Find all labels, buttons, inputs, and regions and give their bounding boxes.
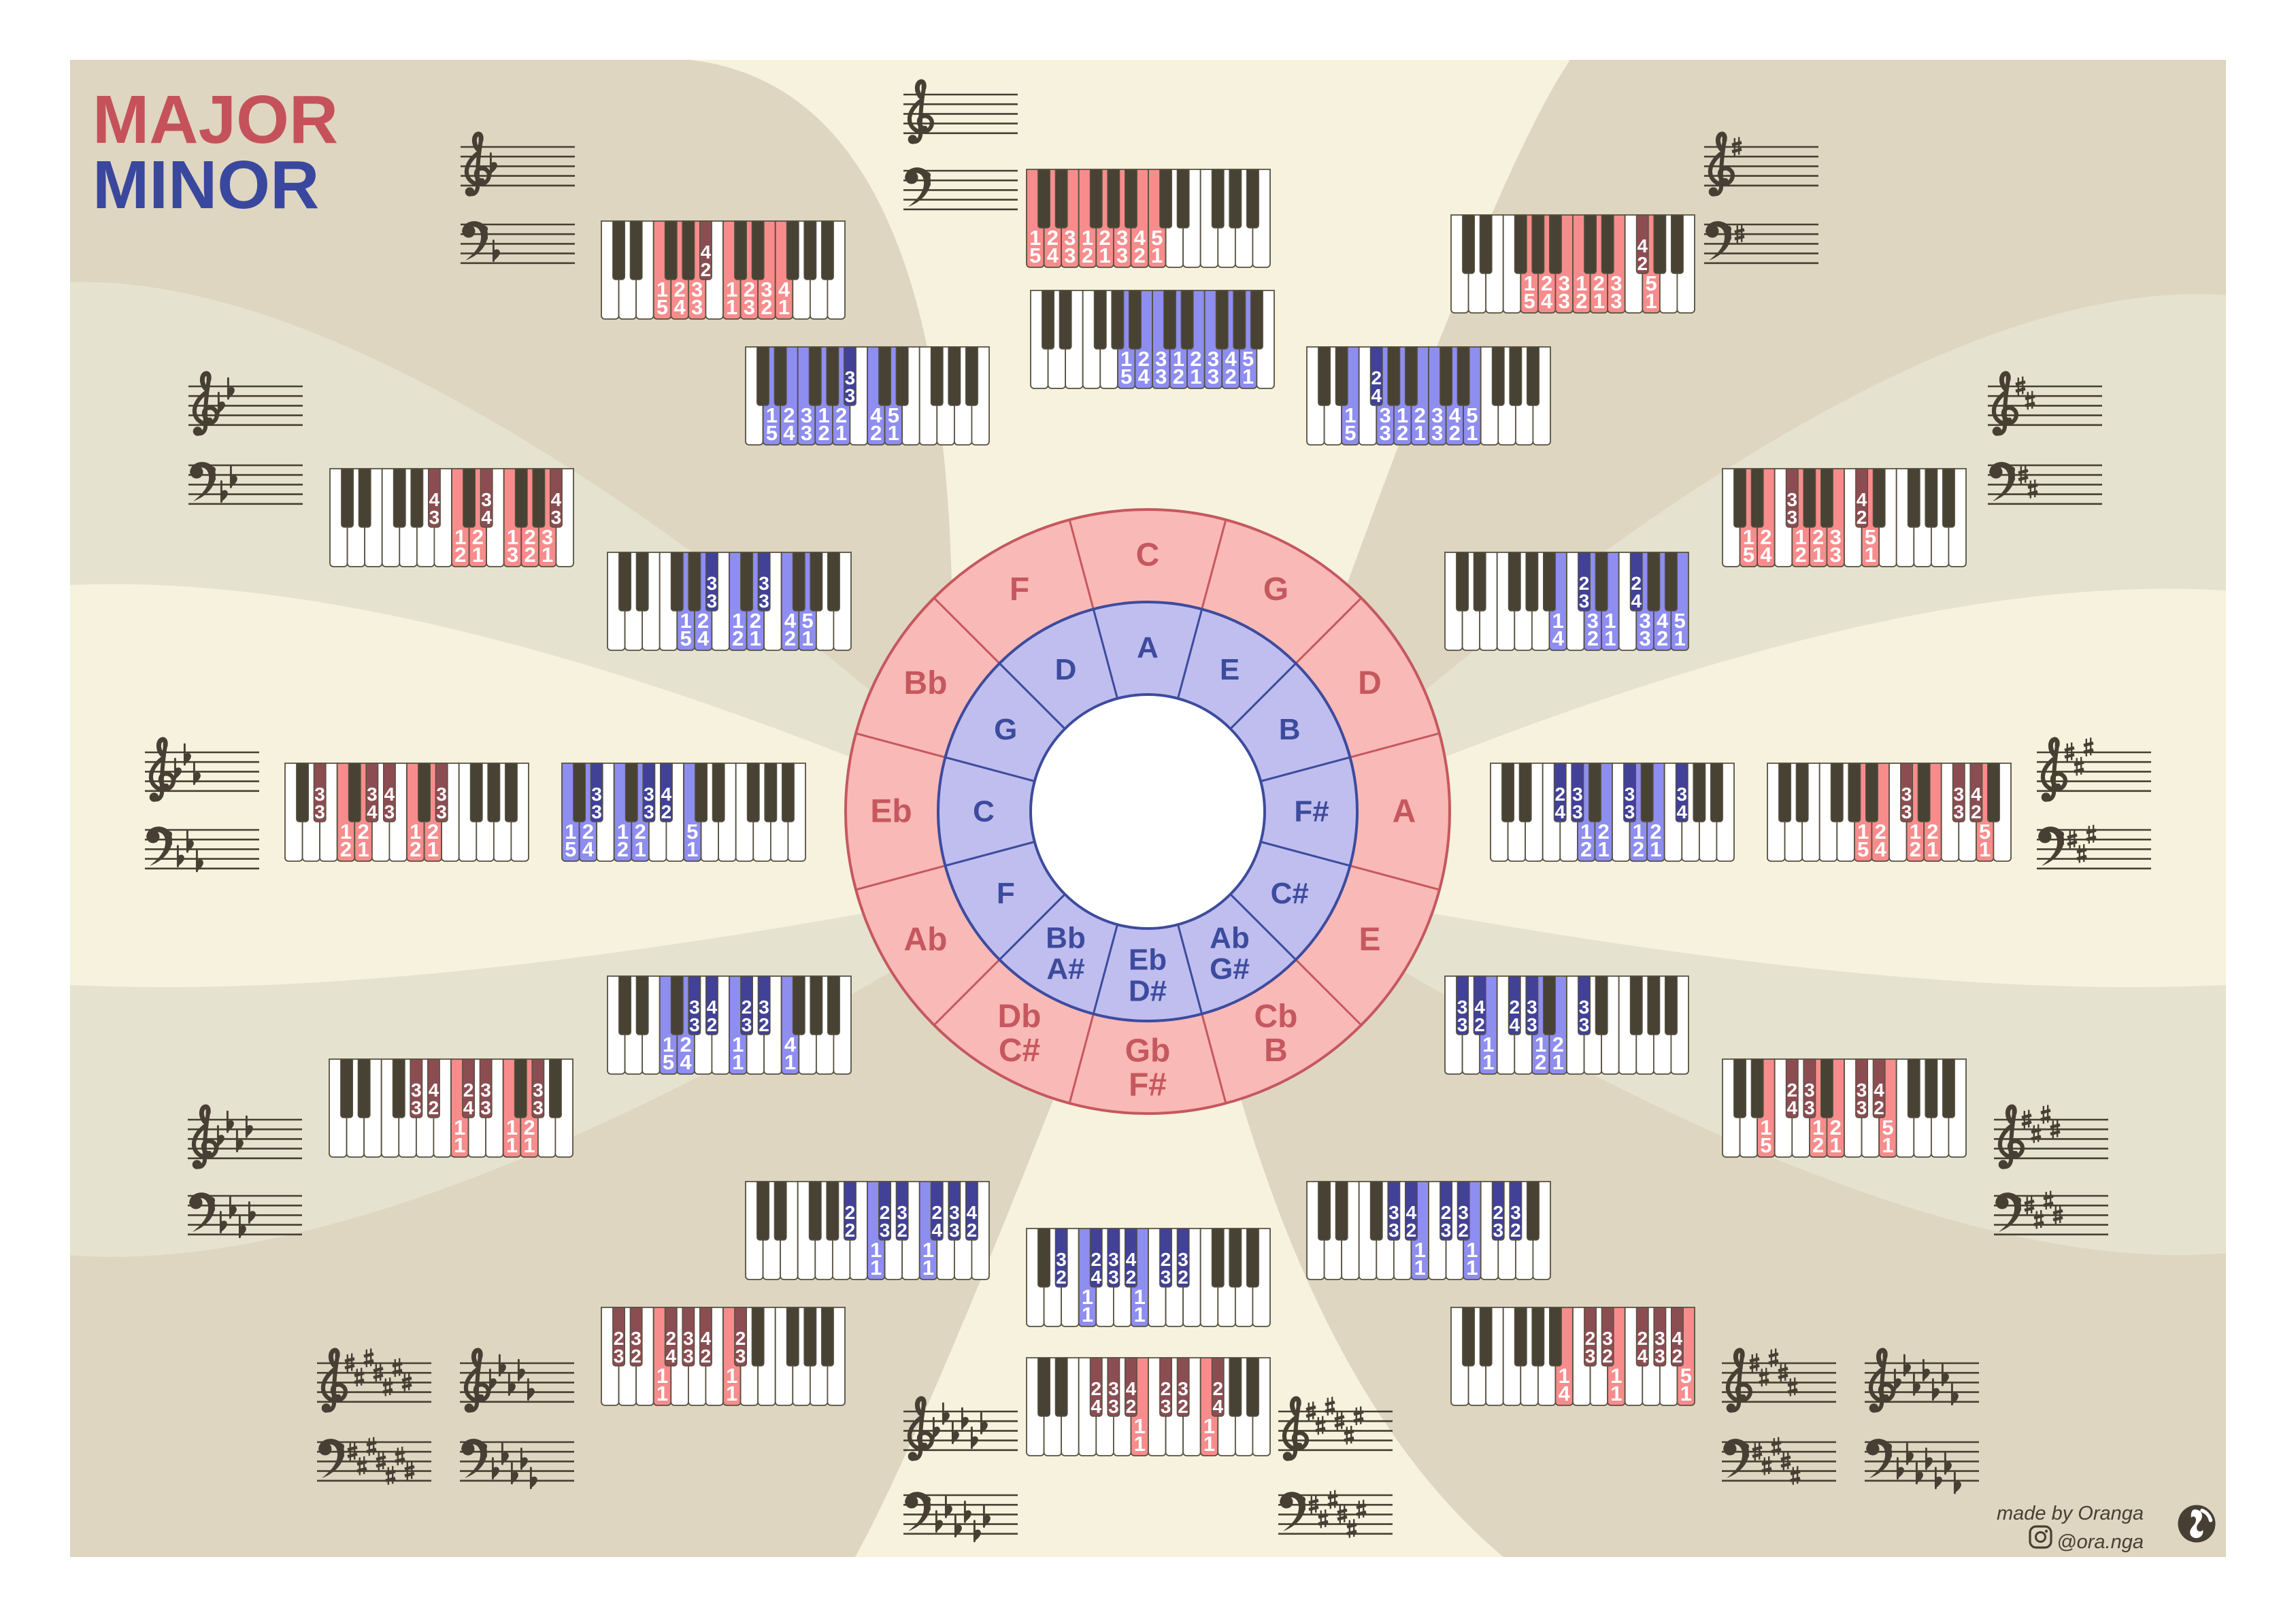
svg-text:2: 2	[1971, 801, 1982, 822]
svg-text:2: 2	[784, 626, 796, 650]
svg-text:2: 2	[967, 1220, 978, 1241]
svg-text:1: 1	[1610, 1382, 1622, 1405]
svg-text:1: 1	[1242, 365, 1254, 388]
svg-text:2: 2	[340, 837, 352, 861]
svg-text:1: 1	[870, 1256, 882, 1280]
svg-text:4: 4	[1555, 801, 1566, 822]
svg-text:2: 2	[701, 259, 712, 280]
svg-text:2: 2	[1178, 1267, 1188, 1288]
svg-text:A: A	[1393, 794, 1416, 830]
svg-text:Eb: Eb	[870, 794, 912, 830]
svg-text:3: 3	[429, 507, 440, 528]
svg-text:2: 2	[1580, 837, 1592, 861]
svg-text:3: 3	[1857, 1097, 1867, 1118]
svg-text:4: 4	[666, 1346, 677, 1367]
svg-text:4: 4	[1213, 1396, 1224, 1417]
svg-text:2: 2	[1633, 837, 1644, 861]
svg-text:1: 1	[784, 1050, 796, 1074]
svg-text:3: 3	[1388, 1220, 1399, 1241]
svg-text:B: B	[1279, 713, 1301, 746]
svg-text:3: 3	[411, 1097, 422, 1118]
svg-text:4: 4	[932, 1220, 943, 1241]
svg-text:4: 4	[1091, 1267, 1102, 1288]
svg-text:1: 1	[1812, 543, 1824, 567]
svg-text:3: 3	[801, 421, 812, 445]
svg-text:1: 1	[427, 837, 439, 861]
svg-text:1: 1	[1680, 1382, 1692, 1405]
svg-text:3: 3	[614, 1346, 625, 1367]
svg-text:2: 2	[701, 1346, 712, 1367]
svg-text:5: 5	[565, 837, 576, 861]
svg-text:2: 2	[1449, 421, 1461, 445]
svg-text:4: 4	[367, 801, 378, 822]
svg-text:2: 2	[897, 1220, 908, 1241]
svg-text:2: 2	[1637, 253, 1648, 274]
svg-text:Gb: Gb	[1125, 1033, 1171, 1069]
svg-text:3: 3	[880, 1220, 891, 1241]
svg-text:G: G	[994, 713, 1017, 746]
svg-text:1: 1	[778, 295, 790, 319]
svg-text:2: 2	[1082, 244, 1093, 267]
svg-text:2: 2	[1910, 837, 1921, 861]
svg-text:3: 3	[1116, 244, 1128, 267]
svg-text:1: 1	[726, 295, 737, 319]
svg-text:2: 2	[429, 1097, 439, 1118]
svg-text:3: 3	[1064, 244, 1076, 267]
svg-text:4: 4	[680, 1050, 692, 1074]
svg-text:1: 1	[1414, 421, 1426, 445]
svg-text:3: 3	[507, 543, 518, 567]
svg-text:1: 1	[1151, 244, 1163, 267]
svg-text:3: 3	[591, 801, 602, 822]
svg-text:3: 3	[1610, 289, 1622, 313]
svg-text:5: 5	[656, 295, 668, 319]
svg-text:3: 3	[742, 1014, 752, 1035]
svg-text:4: 4	[1677, 801, 1688, 822]
svg-text:2: 2	[1126, 1396, 1137, 1417]
svg-text:2: 2	[1576, 289, 1587, 313]
svg-text:1: 1	[1099, 244, 1110, 267]
svg-text:1: 1	[1674, 626, 1686, 650]
svg-text:1: 1	[1830, 1133, 1842, 1157]
svg-text:4: 4	[1559, 1382, 1571, 1405]
svg-text:1: 1	[472, 543, 484, 567]
svg-text:D#: D#	[1129, 974, 1167, 1007]
svg-text:4: 4	[582, 837, 595, 861]
svg-text:3: 3	[1830, 543, 1842, 567]
svg-text:1: 1	[1414, 1256, 1426, 1280]
svg-text:F: F	[997, 877, 1015, 910]
svg-text:3: 3	[1441, 1220, 1452, 1241]
svg-text:1: 1	[750, 626, 761, 650]
svg-text:3: 3	[480, 1097, 491, 1118]
svg-text:D: D	[1055, 653, 1077, 686]
svg-text:1: 1	[801, 626, 813, 650]
svg-text:2: 2	[732, 626, 744, 650]
svg-text:1: 1	[523, 1133, 535, 1157]
svg-text:3: 3	[436, 801, 447, 822]
svg-text:D: D	[1358, 665, 1382, 701]
svg-text:A#: A#	[1046, 952, 1084, 986]
svg-text:4: 4	[783, 421, 795, 445]
svg-text:1: 1	[1466, 1256, 1478, 1280]
svg-text:A: A	[1137, 631, 1159, 665]
svg-text:2: 2	[1672, 1346, 1683, 1367]
svg-text:C: C	[973, 795, 995, 829]
svg-text:MINOR: MINOR	[93, 147, 319, 223]
svg-text:4: 4	[1552, 626, 1565, 650]
svg-text:2: 2	[524, 543, 535, 567]
svg-text:3: 3	[689, 1014, 700, 1035]
svg-text:3: 3	[1954, 801, 1965, 822]
svg-text:5: 5	[1344, 421, 1356, 445]
svg-text:2: 2	[761, 295, 772, 319]
svg-text:3: 3	[1579, 1014, 1590, 1035]
svg-text:2: 2	[1126, 1267, 1137, 1288]
svg-text:5: 5	[663, 1050, 674, 1074]
svg-text:Ab: Ab	[1210, 921, 1250, 954]
svg-text:2: 2	[1406, 1220, 1417, 1241]
svg-text:1: 1	[686, 837, 698, 861]
svg-text:F: F	[1010, 571, 1029, 607]
svg-text:3: 3	[1901, 801, 1912, 822]
svg-text:3: 3	[1625, 801, 1635, 822]
svg-text:3: 3	[1161, 1267, 1171, 1288]
svg-text:3: 3	[551, 507, 562, 528]
svg-text:3: 3	[1431, 421, 1443, 445]
svg-text:Ab: Ab	[904, 922, 948, 958]
svg-text:3: 3	[1108, 1267, 1119, 1288]
svg-text:4: 4	[697, 626, 710, 650]
svg-text:3: 3	[949, 1220, 960, 1241]
svg-text:1: 1	[357, 837, 369, 861]
svg-text:C: C	[1136, 537, 1160, 573]
svg-text:E: E	[1359, 922, 1380, 958]
svg-text:3: 3	[845, 385, 856, 406]
svg-text:F#: F#	[1129, 1067, 1167, 1103]
svg-text:3: 3	[1787, 507, 1798, 528]
svg-text:2: 2	[1474, 1014, 1485, 1035]
svg-text:4: 4	[463, 1097, 474, 1118]
svg-text:3: 3	[384, 801, 395, 822]
svg-text:5: 5	[766, 421, 778, 445]
svg-text:2: 2	[617, 837, 629, 861]
svg-text:3: 3	[1585, 1346, 1596, 1367]
svg-text:4: 4	[1541, 289, 1553, 313]
svg-text:3: 3	[314, 801, 325, 822]
svg-text:1: 1	[1134, 1303, 1146, 1326]
svg-text:4: 4	[1371, 385, 1382, 406]
svg-text:1: 1	[732, 1050, 744, 1074]
svg-text:@ora.nga: @ora.nga	[2057, 1531, 2144, 1553]
svg-text:3: 3	[707, 590, 718, 612]
svg-text:4: 4	[1787, 1097, 1798, 1118]
svg-text:3: 3	[1579, 590, 1590, 612]
svg-text:1: 1	[1466, 421, 1478, 445]
svg-text:2: 2	[1795, 543, 1806, 567]
svg-text:3: 3	[1654, 1346, 1665, 1367]
svg-text:1: 1	[1552, 1050, 1564, 1074]
svg-text:1: 1	[726, 1382, 737, 1405]
svg-text:2: 2	[1587, 626, 1599, 650]
svg-text:1: 1	[506, 1133, 518, 1157]
svg-text:2: 2	[454, 543, 466, 567]
svg-text:3: 3	[1155, 365, 1167, 388]
svg-text:2: 2	[1874, 1097, 1884, 1118]
svg-text:3: 3	[759, 590, 769, 612]
svg-text:5: 5	[1523, 289, 1535, 313]
svg-text:2: 2	[1510, 1220, 1521, 1241]
svg-text:3: 3	[683, 1346, 694, 1367]
svg-text:2: 2	[1458, 1220, 1469, 1241]
svg-text:1: 1	[1979, 837, 1991, 861]
svg-text:3: 3	[1804, 1097, 1815, 1118]
svg-text:1: 1	[1650, 837, 1661, 861]
svg-text:2: 2	[759, 1014, 769, 1035]
svg-text:3: 3	[744, 295, 755, 319]
svg-text:2: 2	[1173, 365, 1184, 388]
svg-text:G#: G#	[1210, 952, 1250, 986]
svg-text:5: 5	[1760, 1133, 1771, 1157]
svg-text:1: 1	[454, 1133, 465, 1157]
svg-text:4: 4	[481, 507, 492, 528]
svg-text:2: 2	[1225, 365, 1236, 388]
svg-text:Bb: Bb	[904, 665, 948, 701]
svg-text:3: 3	[644, 801, 654, 822]
svg-text:1: 1	[1882, 1133, 1893, 1157]
svg-text:3: 3	[1639, 626, 1650, 650]
svg-text:1: 1	[922, 1256, 934, 1280]
svg-text:4: 4	[1875, 837, 1887, 861]
svg-text:5: 5	[1857, 837, 1869, 861]
svg-text:3: 3	[1457, 1014, 1468, 1035]
svg-text:2: 2	[818, 421, 829, 445]
svg-text:2: 2	[1178, 1396, 1188, 1417]
svg-text:C#: C#	[1271, 877, 1309, 910]
svg-text:2: 2	[870, 421, 882, 445]
svg-text:1: 1	[1865, 543, 1876, 567]
svg-text:1: 1	[1082, 1303, 1093, 1326]
svg-text:2: 2	[661, 801, 672, 822]
svg-text:Bb: Bb	[1046, 921, 1086, 954]
svg-text:3: 3	[1559, 289, 1570, 313]
svg-text:3: 3	[1379, 421, 1391, 445]
svg-text:2: 2	[1657, 626, 1668, 650]
svg-text:5: 5	[1743, 543, 1754, 567]
svg-text:1: 1	[1203, 1432, 1215, 1456]
svg-text:4: 4	[1631, 590, 1642, 612]
svg-text:2: 2	[1535, 1050, 1546, 1074]
svg-text:1: 1	[1927, 837, 1938, 861]
svg-text:2: 2	[1602, 1346, 1613, 1367]
svg-text:Db: Db	[998, 999, 1042, 1035]
svg-text:1: 1	[1190, 365, 1201, 388]
svg-text:4: 4	[1138, 365, 1150, 388]
svg-text:2: 2	[1397, 421, 1408, 445]
svg-text:Eb: Eb	[1129, 943, 1167, 977]
svg-text:2: 2	[1857, 507, 1867, 528]
svg-text:2: 2	[707, 1014, 718, 1035]
svg-text:5: 5	[1120, 365, 1132, 388]
svg-text:1: 1	[1604, 626, 1616, 650]
svg-text:E: E	[1220, 653, 1239, 686]
svg-text:F#: F#	[1294, 795, 1329, 829]
svg-text:3: 3	[1161, 1396, 1171, 1417]
svg-text:2: 2	[631, 1346, 642, 1367]
svg-text:4: 4	[673, 295, 686, 319]
svg-text:1: 1	[1598, 837, 1610, 861]
svg-text:1: 1	[634, 837, 646, 861]
svg-text:G: G	[1263, 571, 1288, 607]
svg-text:2: 2	[1056, 1267, 1067, 1288]
svg-text:3: 3	[1572, 801, 1583, 822]
svg-text:B: B	[1264, 1033, 1288, 1069]
svg-text:5: 5	[680, 626, 691, 650]
svg-text:3: 3	[1527, 1014, 1537, 1035]
svg-text:3: 3	[735, 1346, 746, 1367]
svg-text:1: 1	[1645, 289, 1657, 313]
svg-text:4: 4	[1047, 244, 1059, 267]
svg-text:5: 5	[1029, 244, 1041, 267]
svg-text:4: 4	[1637, 1346, 1648, 1367]
svg-text:C#: C#	[999, 1033, 1040, 1069]
svg-text:4: 4	[1091, 1396, 1102, 1417]
svg-text:2: 2	[1134, 244, 1146, 267]
svg-text:2: 2	[1812, 1133, 1824, 1157]
svg-text:4: 4	[1760, 543, 1772, 567]
svg-text:made by Oranga: made by Oranga	[1997, 1503, 2144, 1524]
svg-text:1: 1	[835, 421, 847, 445]
svg-text:1: 1	[542, 543, 553, 567]
svg-text:4: 4	[1510, 1014, 1520, 1035]
svg-text:3: 3	[691, 295, 703, 319]
svg-text:1: 1	[1134, 1432, 1146, 1456]
svg-text:2: 2	[845, 1220, 856, 1241]
svg-text:3: 3	[533, 1097, 544, 1118]
svg-text:1: 1	[1482, 1050, 1494, 1074]
svg-text:3: 3	[1108, 1396, 1119, 1417]
svg-text:1: 1	[1593, 289, 1605, 313]
svg-text:1: 1	[888, 421, 899, 445]
svg-text:2: 2	[410, 837, 421, 861]
svg-text:Cb: Cb	[1254, 999, 1298, 1035]
svg-text:1: 1	[656, 1382, 668, 1405]
svg-text:3: 3	[1493, 1220, 1504, 1241]
svg-text:3: 3	[1208, 365, 1219, 388]
